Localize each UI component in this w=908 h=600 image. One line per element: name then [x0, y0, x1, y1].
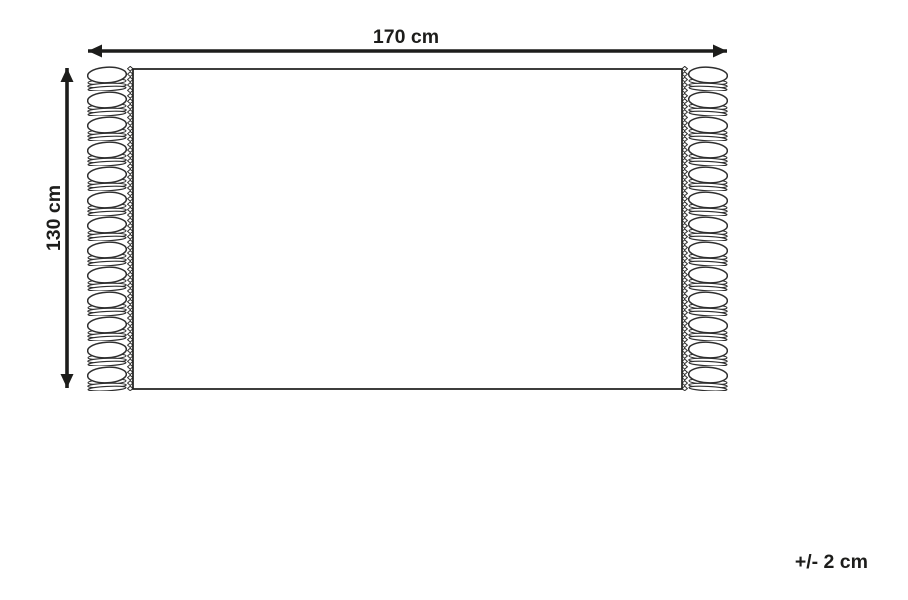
left-fringe	[87, 66, 127, 391]
blanket-body	[133, 69, 682, 389]
width-dimension-label: 170 cm	[373, 26, 439, 48]
left-braided-edge	[127, 66, 134, 391]
product-dimension-diagram: 170 cm 130 cm +/- 2 cm	[0, 0, 908, 600]
diagram-svg: 170 cm 130 cm +/- 2 cm	[0, 0, 908, 600]
right-braided-edge	[682, 66, 689, 391]
tolerance-label: +/- 2 cm	[795, 551, 868, 573]
right-fringe	[688, 66, 728, 391]
height-dimension-label: 130 cm	[43, 185, 65, 251]
